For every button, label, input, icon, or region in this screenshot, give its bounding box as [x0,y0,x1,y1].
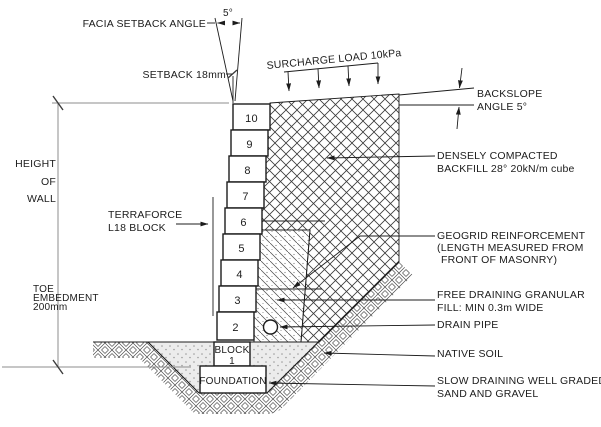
facia-angle-value: 5° [223,8,233,19]
geogrid-callout-line3: FRONT OF MASONRY) [441,254,557,266]
granular-fill-region [254,230,310,342]
surcharge-arrow-2 [318,69,319,88]
backslope-label-line2: ANGLE 5° [477,101,527,113]
native-soil-callout: NATIVE SOIL [437,348,503,360]
toe-embedment-line3: 200mm [33,302,67,313]
backslope-sloped-ref-line [399,88,474,95]
block-label: 2 [232,322,238,334]
setback-label: SETBACK 18mm [142,69,226,81]
backslope-label-line1: BACKSLOPE [477,88,542,100]
block-label: 5 [238,243,244,255]
wall-block-6: 6 [225,208,262,234]
surcharge-arrow-1 [288,72,289,91]
wall-block-8: 8 [229,156,266,182]
granular-callout-line1: FREE DRAINING GRANULAR [437,289,585,301]
facia-setback-angle-dimension [207,18,242,103]
foundation-block: FOUNDATION [199,366,266,393]
sand-gravel-callout-line2: SAND AND GRAVEL [437,388,538,400]
surcharge-arrow-3 [348,66,349,86]
retaining-wall-section-diagram: 10 9 8 7 6 5 4 3 [0,0,601,427]
terraforce-label-line1: TERRAFORCE [108,209,182,221]
block-label: 9 [246,139,252,151]
wall-block-10: 10 [233,104,270,130]
backslope-angle-dimension [399,68,474,129]
granular-callout-line2: FILL: MIN 0.3m WIDE [437,302,543,314]
wall-block-7: 7 [227,182,264,208]
diagram-canvas: 10 9 8 7 6 5 4 3 [0,0,601,427]
block-label: 3 [234,295,240,307]
geogrid-callout-line1: GEOGRID REINFORCEMENT [437,230,586,242]
height-dimension [2,96,229,374]
geogrid-callout-line2: (LENGTH MEASURED FROM [437,242,584,254]
terraforce-label-line2: L18 BLOCK [108,222,166,234]
wall-block-3: 3 [219,286,256,312]
backfill-callout-line2: BACKFILL 28° 20kN/m cube [437,163,575,175]
wall-block-9: 9 [231,130,268,156]
drain-pipe-callout: DRAIN PIPE [437,319,499,331]
height-of-wall-line1: HEIGHT [15,158,56,170]
backfill-callout-line1: DENSELY COMPACTED [437,150,558,162]
block-label: 7 [242,191,248,203]
block-label: 6 [240,217,246,229]
backslope-arrow-down [460,68,463,88]
wall-block-1: BLOCK 1 [214,342,250,367]
foundation-label: FOUNDATION [199,376,266,387]
facia-vertical-line [215,18,233,101]
wall-block-2: 2 [217,312,254,340]
facia-setback-angle-label: FACIA SETBACK ANGLE [83,18,206,30]
wall-block-5: 5 [223,234,260,260]
block-label: BLOCK [215,345,250,356]
block-label: 4 [236,269,242,281]
surcharge-load-label: SURCHARGE LOAD 10kPa [266,47,402,72]
drain-pipe-circle [264,320,278,334]
leader-native-soil [324,353,435,356]
facia-tilted-line [235,18,242,101]
wall-block-4: 4 [221,260,258,286]
block-label: 8 [244,165,250,177]
block-label: 10 [245,113,258,125]
sand-gravel-callout-line1: SLOW DRAINING WELL GRADED [437,375,601,387]
height-of-wall-line2: OF [41,176,56,188]
height-of-wall-line3: WALL [27,193,56,205]
backslope-arrow-up [457,107,459,129]
